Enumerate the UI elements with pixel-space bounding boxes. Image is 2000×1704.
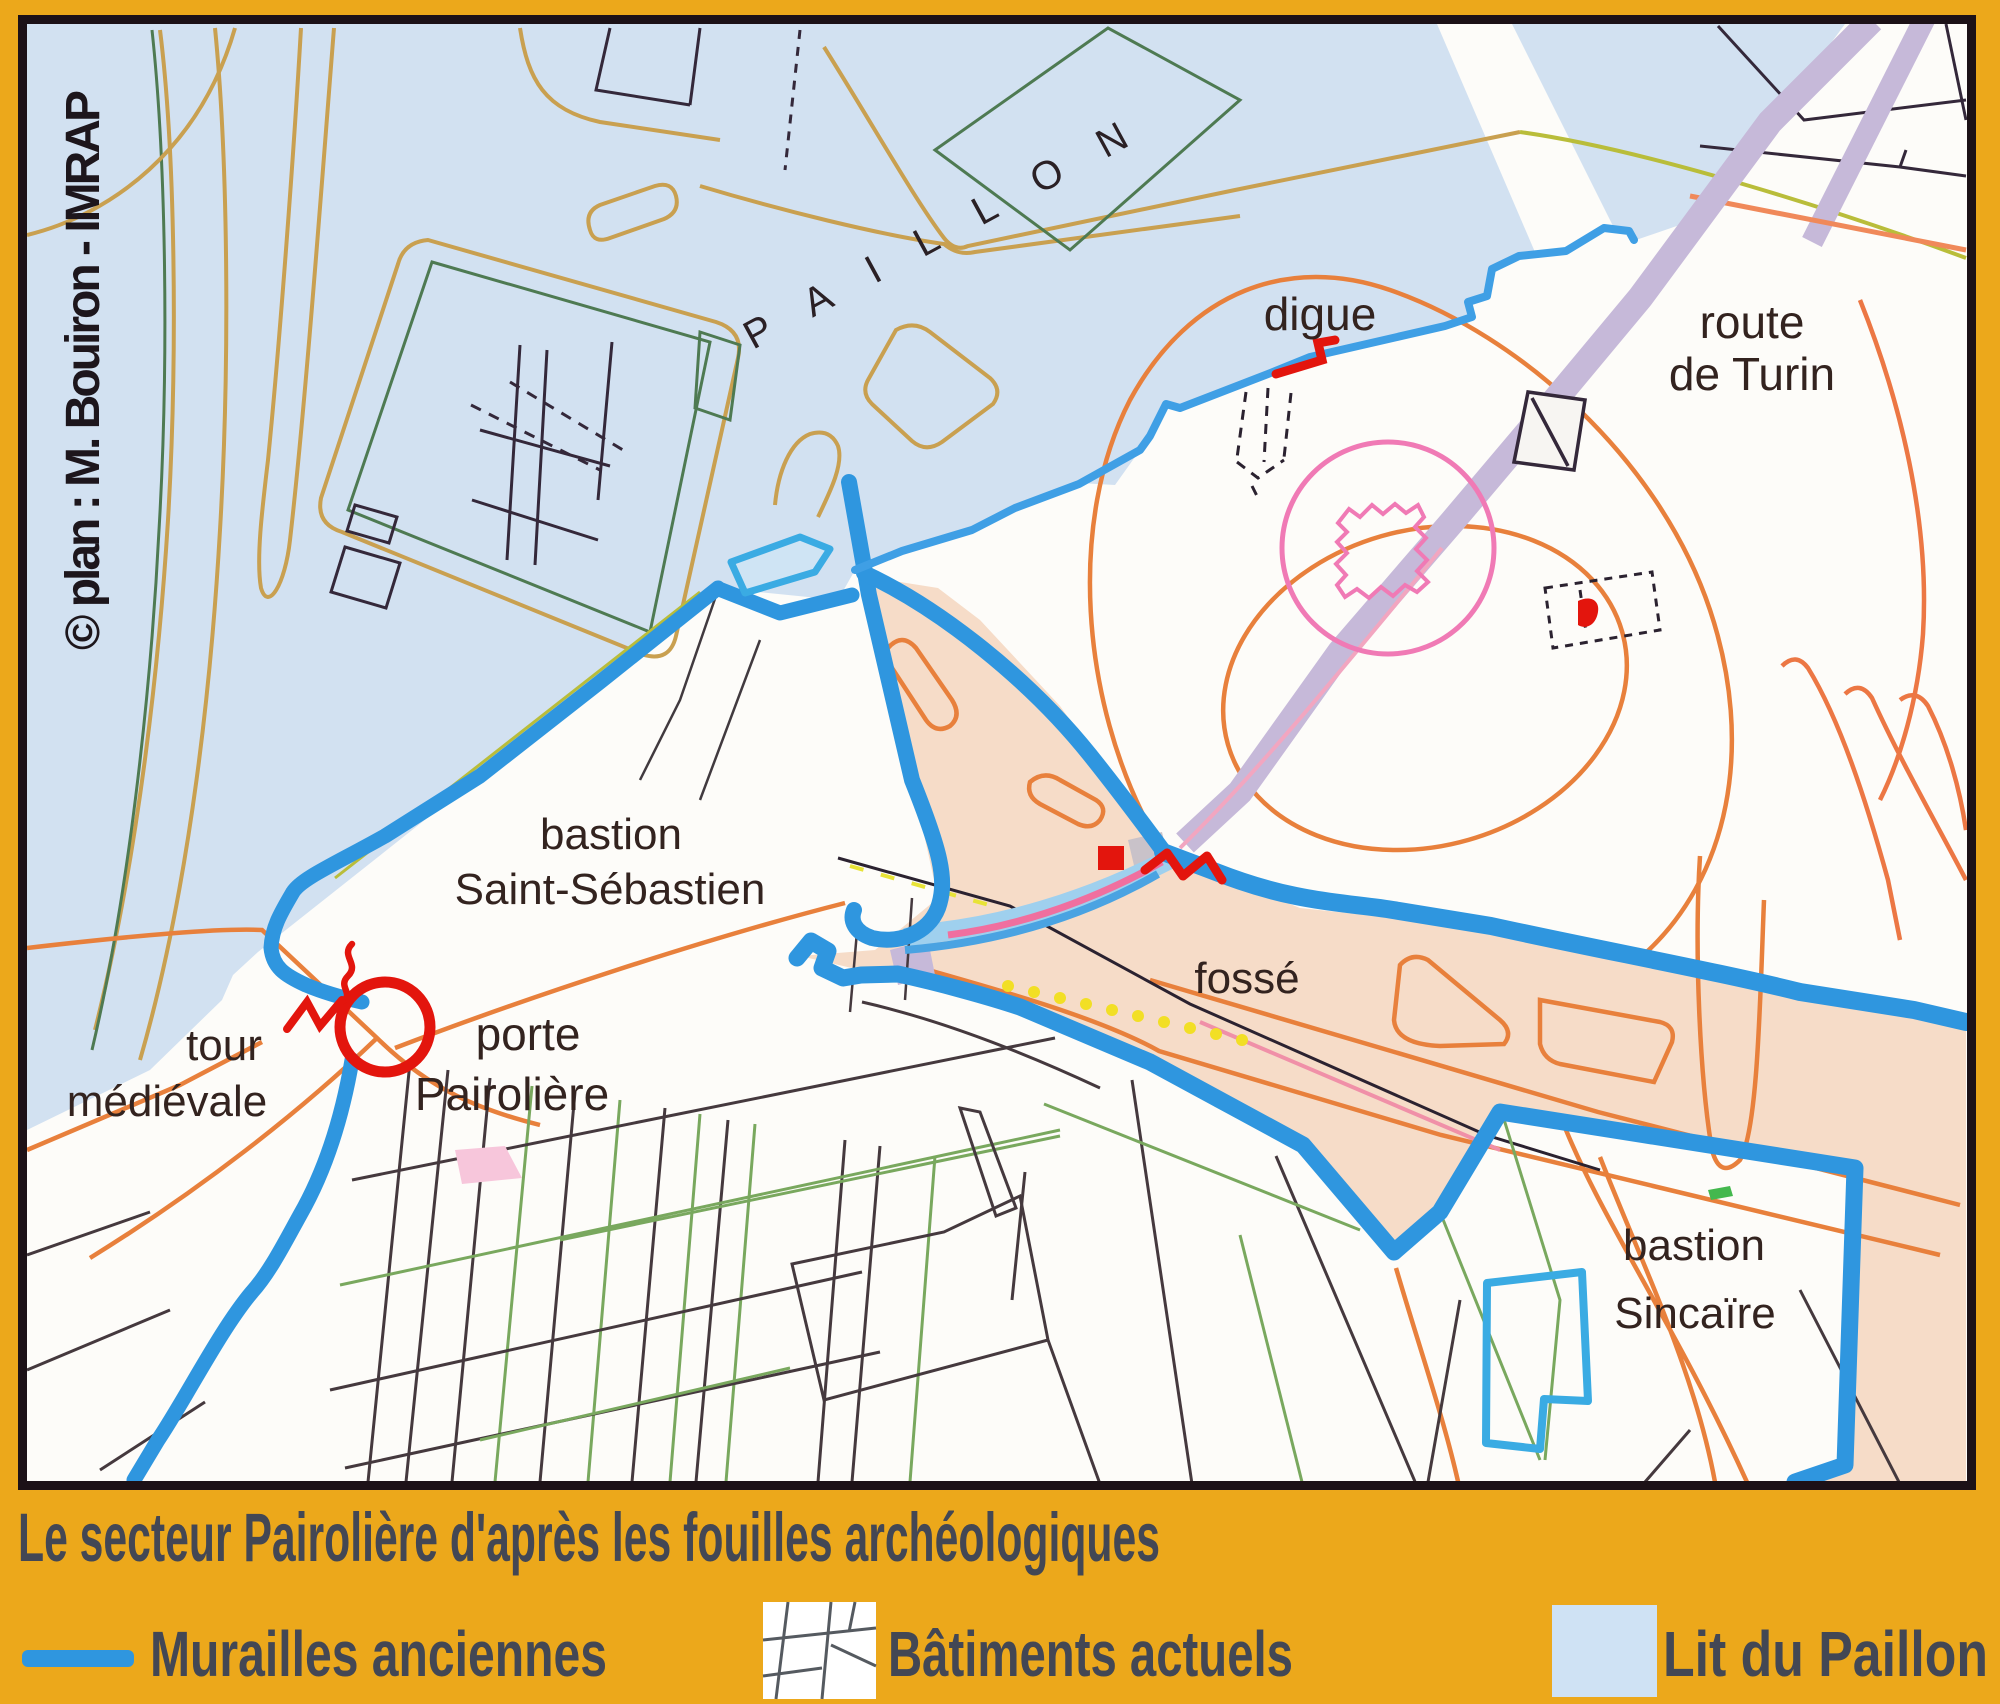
svg-text:Murailles anciennes: Murailles anciennes bbox=[150, 1618, 607, 1690]
svg-text:© plan : M. Bouiron - IMRAP: © plan : M. Bouiron - IMRAP bbox=[57, 90, 110, 650]
svg-text:Bâtiments actuels: Bâtiments actuels bbox=[888, 1618, 1293, 1690]
svg-text:Le secteur Pairolière d'après: Le secteur Pairolière d'après les fouill… bbox=[18, 1499, 1160, 1576]
svg-text:Saint-Sébastien: Saint-Sébastien bbox=[455, 865, 766, 914]
svg-text:fossé: fossé bbox=[1194, 954, 1299, 1003]
svg-text:Lit du Paillon: Lit du Paillon bbox=[1663, 1618, 1988, 1690]
svg-text:route: route bbox=[1700, 296, 1805, 348]
svg-text:porte: porte bbox=[476, 1008, 581, 1060]
svg-text:Pairolière: Pairolière bbox=[415, 1068, 609, 1120]
svg-text:tour: tour bbox=[186, 1021, 262, 1070]
svg-text:bastion: bastion bbox=[1623, 1221, 1765, 1270]
svg-text:Sincaïre: Sincaïre bbox=[1614, 1289, 1775, 1338]
svg-text:médiévale: médiévale bbox=[67, 1077, 268, 1126]
svg-text:digue: digue bbox=[1264, 288, 1377, 340]
svg-text:bastion: bastion bbox=[540, 810, 682, 859]
svg-text:de Turin: de Turin bbox=[1669, 348, 1835, 400]
